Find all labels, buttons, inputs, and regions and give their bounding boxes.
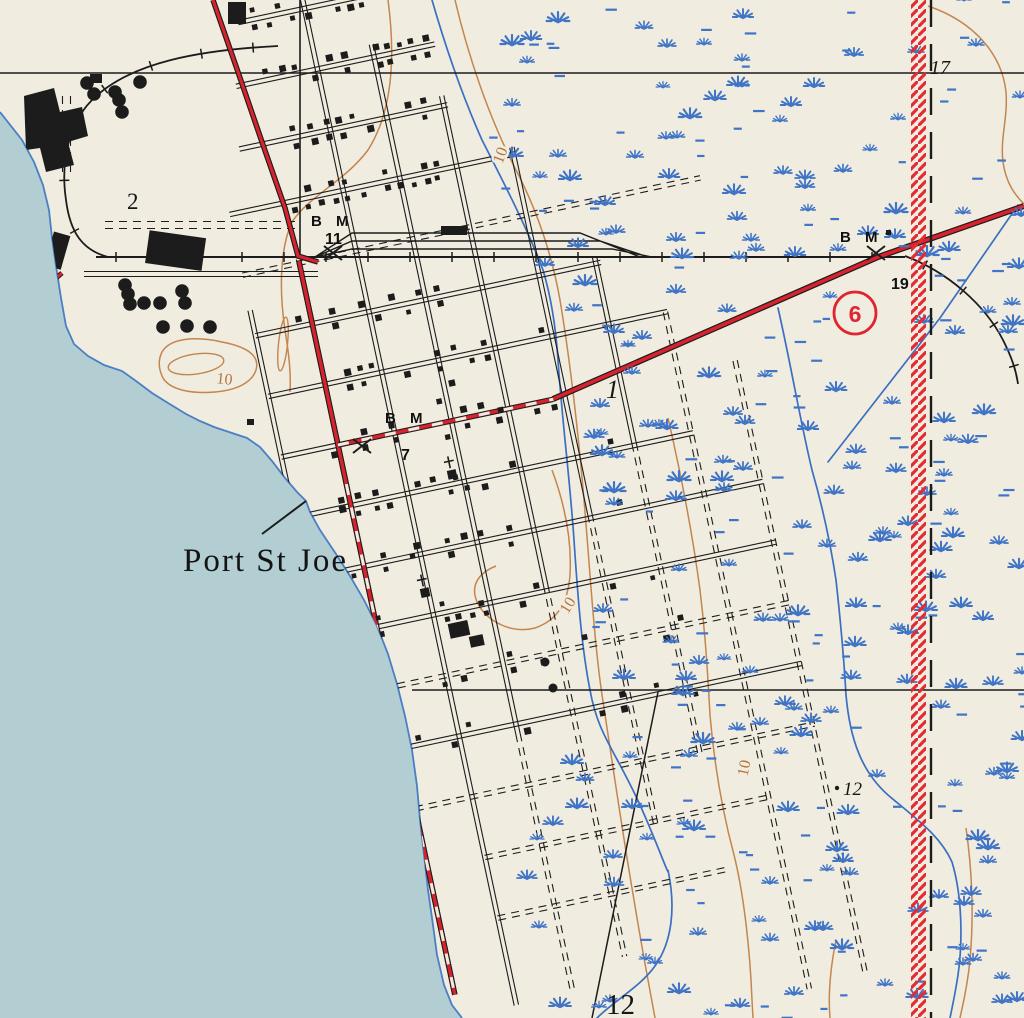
map-screenshot: Port St Joe B M 11 B M 7 B M 19 6 17 2 1… (0, 0, 1024, 1018)
bm19-label: B M (840, 229, 883, 246)
bm19-elevation: 19 (891, 276, 909, 293)
contour-label-10-west: 10 (216, 370, 234, 389)
town-label: Port St Joe (183, 543, 348, 579)
section-1: 1 (606, 375, 619, 404)
route-shield-number: 6 (849, 301, 862, 327)
map-canvas[interactable]: Port St Joe B M 11 B M 7 B M 19 6 17 2 1… (0, 0, 1024, 1018)
bm11-label: B M (311, 213, 354, 230)
spot-elevation-12: 12 (843, 779, 863, 800)
bm11-elevation: 11 (325, 231, 342, 248)
boundary-hatch (911, 0, 926, 1018)
section-12: 12 (606, 989, 635, 1018)
bm7-elevation: 7 (401, 447, 410, 464)
section-2: 2 (127, 189, 139, 214)
bm7-label: B M (385, 410, 428, 427)
section-17: 17 (930, 57, 951, 79)
